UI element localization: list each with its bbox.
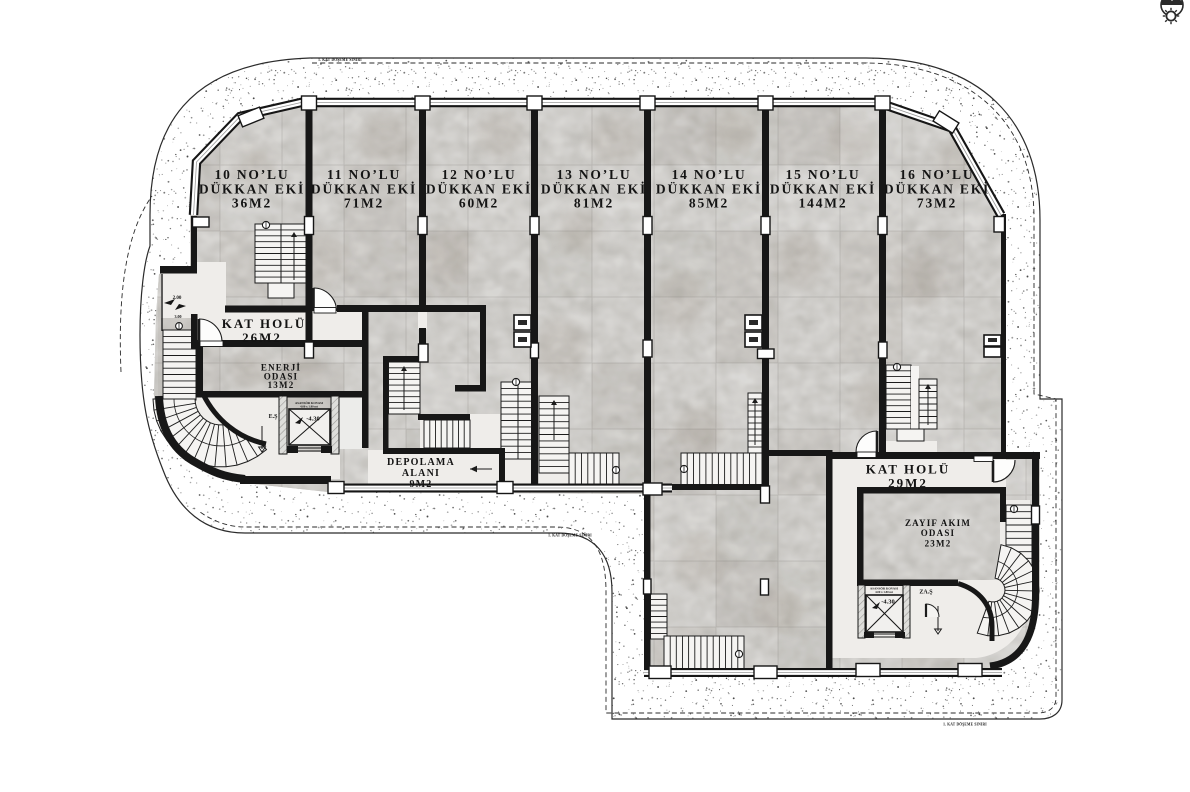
svg-text:10 NO’LU: 10 NO’LU [215, 167, 290, 182]
svg-text:KAT HOLÜ: KAT HOLÜ [222, 316, 307, 331]
svg-text:KAT HOLÜ: KAT HOLÜ [866, 462, 951, 477]
svg-text:15 NO’LU: 15 NO’LU [786, 167, 861, 182]
svg-text:81M2: 81M2 [574, 196, 614, 211]
svg-text:11 NO’LU: 11 NO’LU [327, 167, 401, 182]
svg-text:DEPOLAMA: DEPOLAMA [387, 457, 455, 468]
svg-text:1. KAT DÖŞEME SINIRI: 1. KAT DÖŞEME SINIRI [548, 533, 592, 538]
svg-text:85M2: 85M2 [689, 196, 729, 211]
svg-text:29M2: 29M2 [888, 476, 928, 491]
svg-text:13 NO’LU: 13 NO’LU [557, 167, 632, 182]
svg-text:DÜKKAN EKİ: DÜKKAN EKİ [770, 182, 876, 197]
svg-text:-4.30: -4.30 [306, 416, 320, 423]
svg-text:4.00 x 1.80 mt: 4.00 x 1.80 mt [300, 405, 318, 409]
svg-text:ALANI: ALANI [402, 468, 440, 479]
svg-text:23M2: 23M2 [925, 539, 952, 549]
svg-text:DÜKKAN EKİ: DÜKKAN EKİ [884, 182, 990, 197]
svg-text:13M2: 13M2 [268, 380, 295, 390]
svg-text:3.00: 3.00 [175, 314, 182, 319]
svg-text:1. KAT DÖŞEME SINIRI: 1. KAT DÖŞEME SINIRI [943, 722, 987, 727]
svg-text:DÜKKAN EKİ: DÜKKAN EKİ [426, 182, 532, 197]
svg-text:ZAYIF AKIM: ZAYIF AKIM [905, 518, 971, 528]
svg-text:DÜKKAN EKİ: DÜKKAN EKİ [656, 182, 762, 197]
svg-text:16 NO’LU: 16 NO’LU [900, 167, 975, 182]
svg-text:73M2: 73M2 [917, 196, 957, 211]
svg-text:14 NO’LU: 14 NO’LU [672, 167, 747, 182]
svg-text:1. KAT DÖŞEME SINIRI: 1. KAT DÖŞEME SINIRI [318, 57, 362, 62]
svg-text:144M2: 144M2 [799, 196, 848, 211]
svg-text:DÜKKAN EKİ: DÜKKAN EKİ [541, 182, 647, 197]
svg-text:9M2: 9M2 [409, 479, 432, 490]
svg-text:E.Ş: E.Ş [269, 414, 279, 420]
svg-text:60M2: 60M2 [459, 196, 499, 211]
svg-text:71M2: 71M2 [344, 196, 384, 211]
svg-text:26M2: 26M2 [242, 330, 282, 345]
svg-text:36M2: 36M2 [232, 196, 272, 211]
svg-text:4.00 x 1.80 mt: 4.00 x 1.80 mt [875, 590, 893, 594]
svg-text:ODASI: ODASI [921, 528, 956, 538]
svg-text:DÜKKAN EKİ: DÜKKAN EKİ [199, 182, 305, 197]
svg-text:12 NO’LU: 12 NO’LU [442, 167, 517, 182]
svg-text:DÜKKAN EKİ: DÜKKAN EKİ [311, 182, 417, 197]
svg-text:-4.30: -4.30 [881, 599, 895, 606]
svg-text:ZA.Ş: ZA.Ş [919, 590, 933, 596]
